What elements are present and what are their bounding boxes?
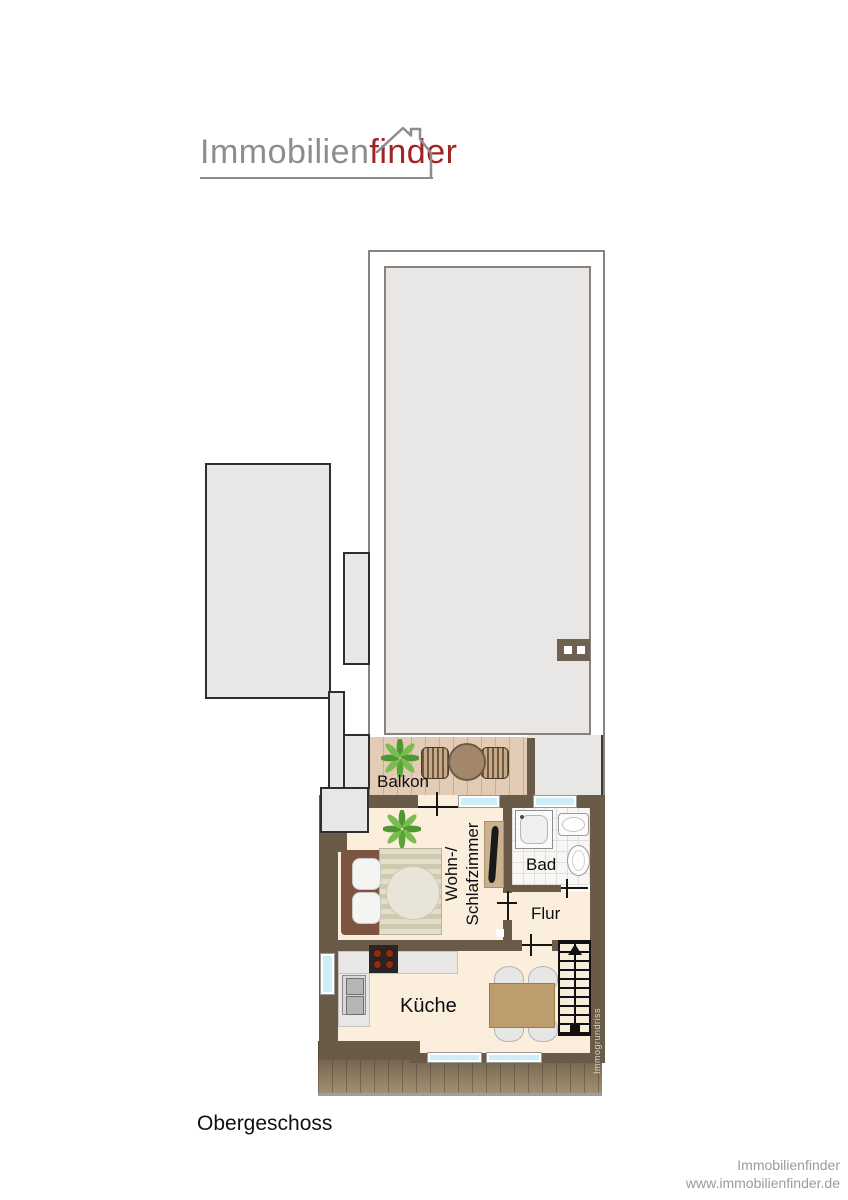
bed-pillow <box>352 858 381 890</box>
bed-pillow <box>352 892 381 924</box>
wall-living-bath-upper <box>503 808 512 893</box>
room-label-flur: Flur <box>531 904 560 924</box>
footer-company: Immobilienfinder <box>590 1156 840 1174</box>
toilet <box>567 845 590 876</box>
plan-watermark: Immogrundriss <box>592 1008 602 1074</box>
cooktop <box>369 945 398 973</box>
window-glass <box>536 798 574 805</box>
room-label-wohn-line1: Wohn-/ <box>441 804 462 944</box>
window-kitchen-bottom-1 <box>427 1052 482 1063</box>
hall-kitchen-door-line <box>522 944 552 946</box>
staircase-midline <box>574 942 576 1034</box>
chimney-flue <box>564 646 572 654</box>
burner <box>385 949 394 958</box>
sink-basin <box>346 978 364 995</box>
window-glass <box>430 1055 479 1060</box>
balcony-table <box>448 743 486 781</box>
adjacent-roof-block-bottom <box>320 787 369 833</box>
wall-balcony-right <box>527 738 535 795</box>
roof-surface <box>384 266 591 735</box>
window-kitchen-left <box>320 953 335 995</box>
sink-basin <box>346 996 364 1015</box>
room-label-balkon: Balkon <box>377 772 429 792</box>
window-kitchen-bottom-2 <box>486 1052 542 1063</box>
room-label-kueche: Küche <box>400 995 457 1018</box>
house-outline-icon <box>368 122 436 182</box>
chimney-flue <box>577 646 585 654</box>
wall-corner-living <box>319 831 347 852</box>
chimney <box>557 639 590 661</box>
staircase-start-marker <box>570 1023 580 1032</box>
shower <box>515 810 553 849</box>
window-bath <box>533 795 577 808</box>
wall-living-hall-lower <box>503 920 512 940</box>
adjacent-roof-block-small <box>343 734 370 789</box>
dining-table <box>489 983 555 1028</box>
window-glass <box>323 956 332 992</box>
adjacent-roof-block-narrow <box>343 552 370 665</box>
bed-duvet <box>386 866 440 920</box>
burner <box>373 949 382 958</box>
staircase-up-arrow-icon <box>568 944 582 955</box>
floorplan-page: Immobilienfinder <box>0 0 848 1200</box>
washbasin <box>558 813 589 836</box>
roof-surface-lower <box>527 735 603 795</box>
room-label-bad: Bad <box>526 855 556 875</box>
footer-website: www.immobilienfinder.de <box>590 1174 840 1192</box>
living-hall-door-tick <box>497 902 517 904</box>
burner <box>385 960 394 969</box>
footer: Immobilienfinder www.immobilienfinder.de <box>590 1156 840 1192</box>
wall-bottom-left <box>319 1041 420 1060</box>
burner <box>373 960 382 969</box>
bath-door-tick <box>566 879 568 898</box>
toilet-seat <box>572 850 585 871</box>
staircase <box>558 940 591 1036</box>
wall-top-left <box>367 795 418 808</box>
room-label-wohn-line2: Schlafzimmer <box>462 804 483 944</box>
wall-bath-hall <box>512 885 561 892</box>
floor-title: Obergeschoss <box>197 1112 332 1136</box>
hall-kitchen-door-tick <box>530 934 532 956</box>
kitchen-sink <box>342 975 366 1015</box>
wall-pillar-marker <box>496 929 504 937</box>
room-label-wohn-schlafzimmer: Wohn-/ Schlafzimmer <box>441 804 483 944</box>
washbasin-bowl <box>562 817 585 832</box>
logo-text-gray: Immobilien <box>200 133 369 171</box>
window-glass <box>489 1055 539 1060</box>
balcony-door-tick <box>436 792 438 816</box>
living-hall-door-line <box>507 891 509 920</box>
adjacent-roof-block-large <box>205 463 331 699</box>
shower-tray <box>520 815 548 844</box>
plant-icon <box>383 810 421 848</box>
kitchen-counter-top <box>338 951 458 974</box>
shower-drain <box>520 815 524 819</box>
wall-kitchen-top-left <box>319 940 522 951</box>
